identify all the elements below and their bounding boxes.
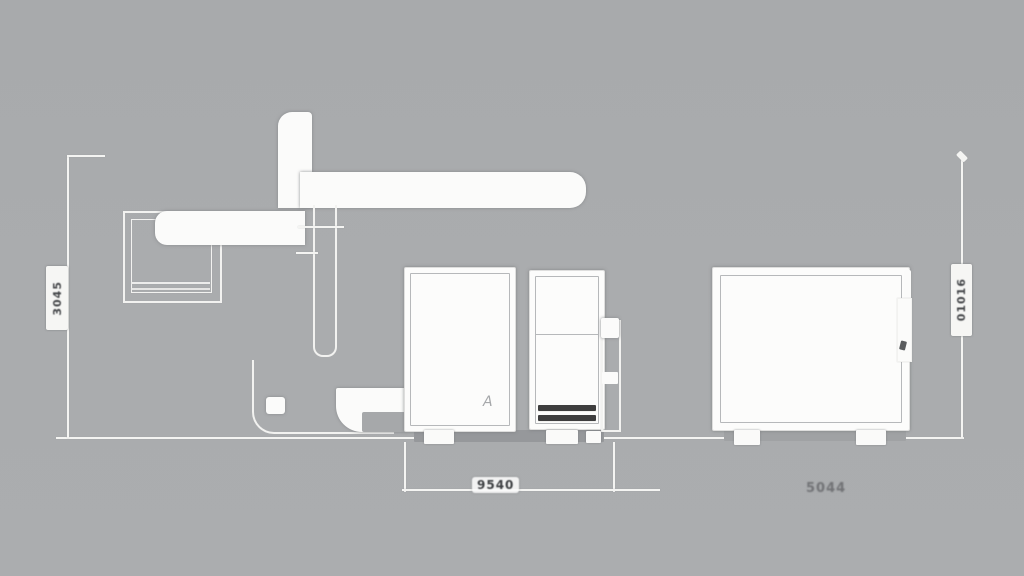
cabinet-vent-panel-outline: [535, 276, 599, 424]
dimension-line-base-width: [402, 489, 660, 491]
right-cabinet-handle: [897, 298, 912, 362]
right-height-dimension-label: 01016: [955, 278, 968, 321]
tank-liquid-line-2: [132, 288, 210, 290]
vent-slat-1: [538, 405, 596, 411]
right-width-dimension-label: 5044: [806, 481, 846, 496]
right-cabinet-outline: [720, 275, 902, 423]
pipe-flange: [296, 252, 318, 254]
diagram-canvas: A 3045 01016 9540 5044: [0, 0, 1024, 576]
center-cabinet-foot-left: [424, 430, 454, 444]
right-cabinet-foot-left: [734, 430, 760, 445]
cabinet-vent-panel: [529, 270, 605, 430]
right-height-dimension-tag: 01016: [951, 264, 972, 336]
outlet-elbow-notch: [362, 412, 406, 432]
duct-horizontal-arm: [300, 172, 586, 208]
vent-panel-divider: [535, 334, 599, 335]
right-cabinet-panel: [712, 267, 910, 431]
extension-line-center-right: [613, 442, 615, 492]
center-cabinet-foot-end: [586, 431, 601, 443]
tank-liquid-line-1: [132, 282, 210, 284]
side-bracket-tab-mid: [602, 372, 618, 384]
left-height-dimension-label: 3045: [51, 281, 64, 316]
right-cabinet-foot-right: [856, 430, 886, 445]
vent-slat-2: [538, 415, 596, 421]
dimension-tick-left-top: [67, 155, 105, 157]
door-handle-icon: A: [483, 394, 493, 410]
pipe-crossbar: [298, 226, 344, 228]
cabinet-door-left-outline: [410, 273, 510, 426]
extension-line-center-left: [404, 442, 406, 492]
feed-conveyor-bar: [155, 211, 305, 245]
side-bracket-tab-top: [601, 318, 619, 338]
left-height-dimension-tag: 3045: [46, 266, 68, 330]
cabinet-door-left: A: [404, 267, 516, 432]
center-cabinet-foot-right: [546, 430, 578, 444]
base-width-dimension-label: 9540: [472, 477, 519, 493]
floor-block: [266, 397, 285, 414]
arrow-icon: [956, 150, 968, 162]
